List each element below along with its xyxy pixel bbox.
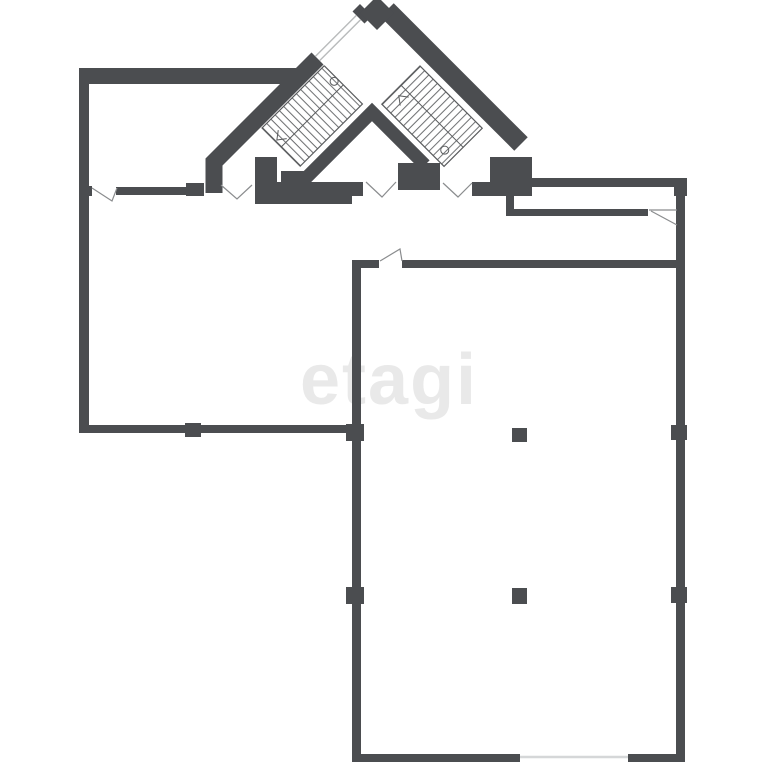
door-swing	[443, 183, 472, 197]
corridor-inner-wall	[506, 209, 648, 216]
watermark: etagi	[300, 340, 478, 420]
door-swing	[92, 188, 117, 201]
left-room-top-wall	[79, 68, 297, 84]
left-room-left-wall	[79, 68, 89, 433]
corridor-corner-block	[490, 157, 532, 196]
door-swing	[366, 182, 396, 197]
wall-segment	[116, 187, 188, 195]
right-room-bottom-wall	[628, 754, 685, 762]
corridor-top-wall	[529, 178, 681, 187]
door-swing	[221, 185, 252, 199]
right-room-walls	[346, 187, 687, 762]
wall-pier	[671, 587, 687, 603]
wall-segment	[255, 182, 363, 196]
left-room-bottom-wall	[79, 425, 362, 433]
right-room-top-wall-stub	[352, 260, 379, 268]
door-swing	[649, 210, 677, 225]
corridor-walls	[490, 157, 687, 216]
door-swing	[380, 249, 402, 261]
wall-pier	[671, 425, 687, 440]
column	[512, 428, 527, 442]
right-room-right-wall	[676, 187, 685, 762]
wall-pier	[185, 423, 201, 437]
floor-plan: etagi	[0, 0, 768, 768]
wall-segment	[255, 196, 352, 204]
wall-pier	[346, 587, 364, 604]
stair-window	[310, 10, 365, 65]
wall-stub	[186, 183, 204, 196]
inner-chevron-right-foot	[398, 163, 440, 190]
right-room-top-wall	[402, 260, 676, 268]
floor-plan-canvas: etagi	[0, 0, 768, 768]
right-room-bottom-wall	[352, 754, 520, 762]
apex-wall-block	[360, 0, 394, 30]
right-room-left-wall	[352, 260, 361, 762]
column	[512, 588, 527, 604]
